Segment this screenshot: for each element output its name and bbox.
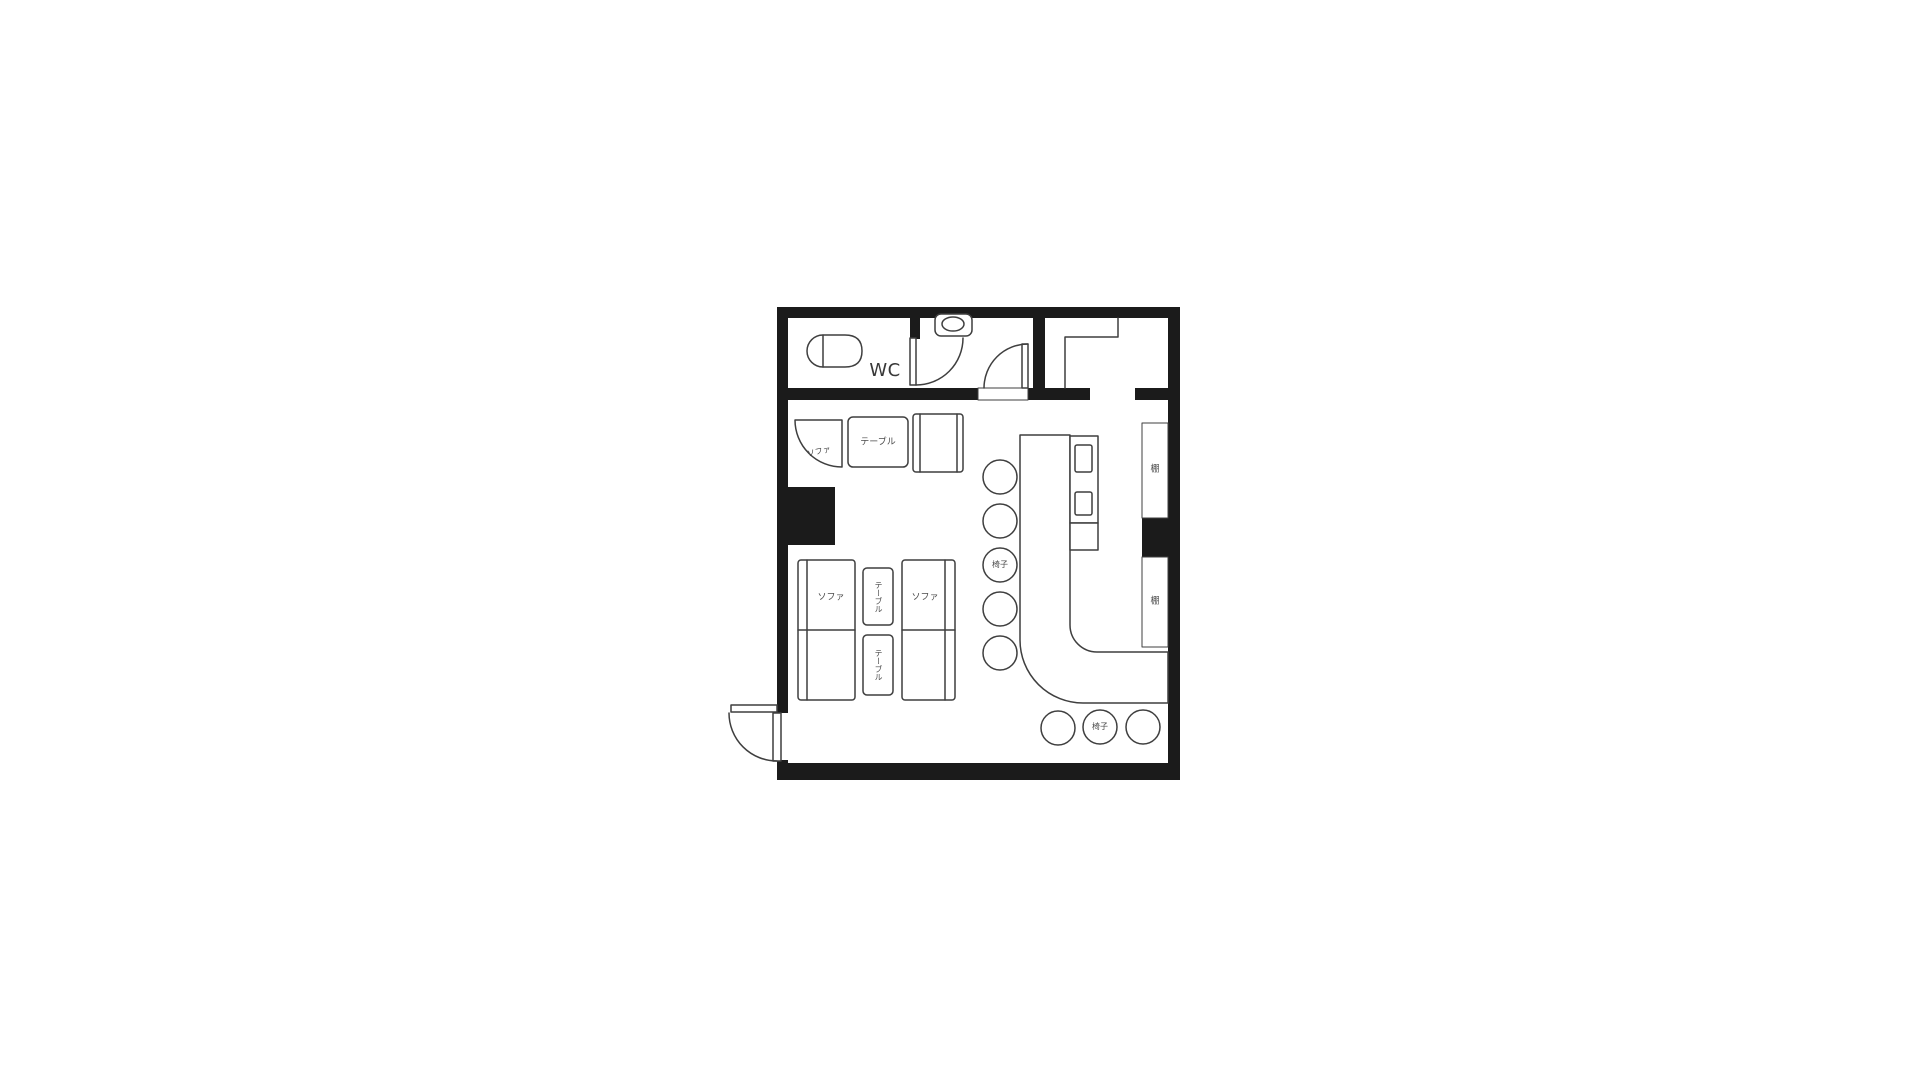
floor-plan-drawing — [717, 307, 1180, 780]
stool-icon — [983, 636, 1017, 670]
corner-sofa-icon — [795, 420, 842, 467]
sofa-left-label: ソファ — [817, 594, 844, 603]
wall-stub — [777, 487, 835, 545]
door-swing-icon-washroom — [910, 338, 963, 385]
table-upper-label: テーブル — [874, 581, 882, 613]
wall-wc-partition — [910, 318, 920, 339]
wall-entry-bottom-left — [1028, 388, 1090, 400]
counter-chair-label: 椅子 — [992, 561, 1008, 569]
shelf-lower-label: 棚 — [1150, 598, 1159, 607]
toilet-icon — [807, 335, 862, 367]
table-lower-label: テーブル — [874, 649, 882, 681]
wall-entry-partition — [1033, 318, 1045, 400]
floor-chair-label: 椅子 — [1092, 723, 1108, 731]
armchair-icon — [913, 414, 963, 472]
wall-top — [777, 307, 1180, 318]
stool-icon — [983, 460, 1017, 494]
floor-plan: WC ソファ テーブル ソファ ソファ テーブル テーブル 椅子 椅子 棚 棚 — [777, 307, 1180, 780]
entry-step-line — [1065, 318, 1118, 388]
shelf-upper-label: 棚 — [1150, 466, 1159, 475]
door-swing-icon-hall — [978, 344, 1028, 400]
stool-icon — [1041, 711, 1075, 745]
wall-entry-bottom-right — [1135, 388, 1168, 400]
wall-right — [1168, 307, 1180, 780]
sink-icon — [935, 314, 972, 336]
sofa-left-icon — [798, 560, 855, 700]
sofa-right-label: ソファ — [911, 594, 938, 603]
wall-shelf-column — [1142, 518, 1168, 557]
stool-icon — [983, 592, 1017, 626]
wall-wc-bottom — [777, 388, 978, 400]
walls — [777, 307, 1180, 780]
page-background: WC ソファ テーブル ソファ ソファ テーブル テーブル 椅子 椅子 棚 棚 — [0, 0, 1920, 1080]
wall-bottom — [777, 763, 1180, 780]
wc-label: WC — [869, 362, 900, 380]
entrance-door-swing-icon — [729, 705, 781, 761]
corner-table-label: テーブル — [860, 439, 895, 448]
sofa-right-icon — [902, 560, 955, 700]
kitchen-equipment-icon — [1070, 436, 1098, 550]
stool-icon — [983, 504, 1017, 538]
stool-icon — [1126, 710, 1160, 744]
